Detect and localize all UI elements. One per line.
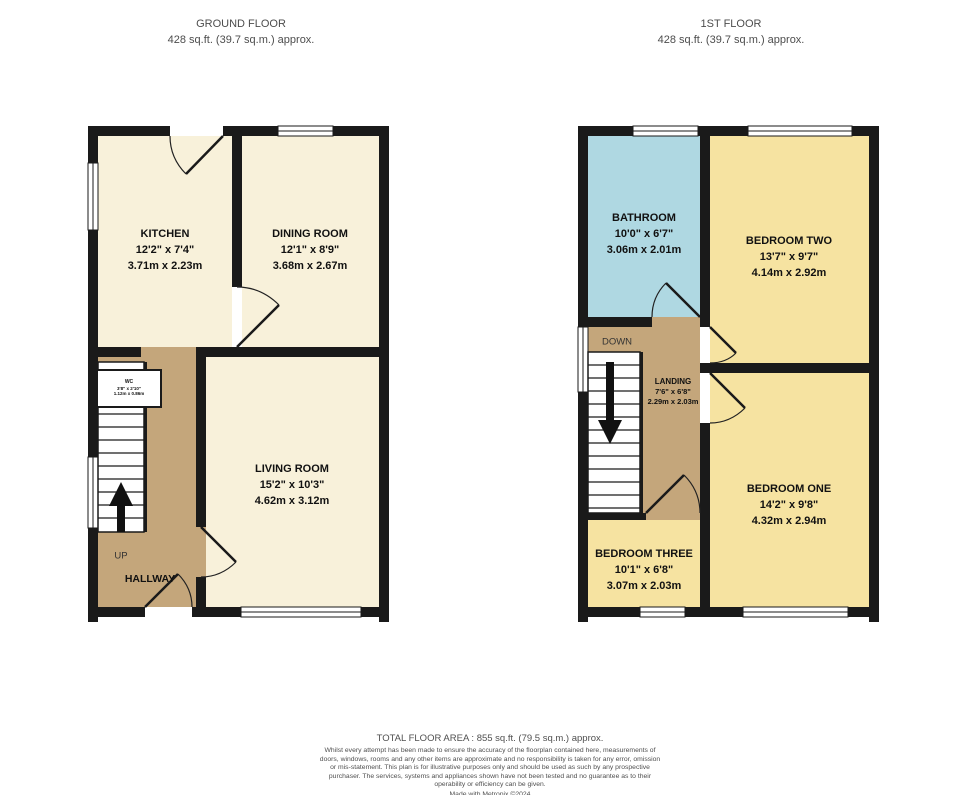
ground-floor-header: GROUND FLOOR 428 sq.ft. (39.7 sq.m.) app…: [86, 16, 396, 48]
kitchen-metric: 3.71m x 2.23m: [128, 258, 203, 274]
landing-metric: 2.29m x 2.03m: [648, 397, 699, 407]
wall: [379, 126, 389, 622]
kitchen-label: KITCHEN 12'2" x 7'4" 3.71m x 2.23m: [128, 226, 203, 274]
floorplan-canvas: GROUND FLOOR 428 sq.ft. (39.7 sq.m.) app…: [0, 0, 980, 795]
bedroom-three-metric: 3.07m x 2.03m: [595, 578, 693, 594]
ground-floor-area: 428 sq.ft. (39.7 sq.m.) approx.: [86, 32, 396, 48]
landing-label: LANDING 7'6" x 6'8" 2.29m x 2.03m: [648, 377, 699, 407]
bedroom-one-label: BEDROOM ONE 14'2" x 9'8" 4.32m x 2.94m: [747, 481, 831, 529]
wall: [361, 607, 389, 617]
down-label: DOWN: [602, 337, 632, 348]
wall: [869, 126, 879, 622]
bedroom-one-name: BEDROOM ONE: [747, 481, 831, 497]
credit-text: Made with Metropix ©2024: [0, 790, 980, 795]
wall: [698, 126, 748, 136]
wall: [88, 347, 141, 357]
wc-label: WC 3'8" x 2'10" 1.12m x 0.86m: [114, 380, 145, 397]
wc-metric: 1.12m x 0.86m: [114, 391, 145, 397]
living-name: LIVING ROOM: [255, 461, 330, 477]
first-floor-title: 1ST FLOOR: [576, 16, 886, 32]
landing-name: LANDING: [648, 377, 699, 387]
living-label: LIVING ROOM 15'2" x 10'3" 4.62m x 3.12m: [255, 461, 330, 509]
living-metric: 4.62m x 3.12m: [255, 493, 330, 509]
first-floor-header: 1ST FLOOR 428 sq.ft. (39.7 sq.m.) approx…: [576, 16, 886, 48]
kitchen-imperial: 12'2" x 7'4": [128, 242, 203, 258]
wall: [578, 126, 588, 327]
wall: [700, 363, 869, 373]
dining-metric: 3.68m x 2.67m: [272, 258, 348, 274]
wall: [640, 352, 643, 513]
dining-imperial: 12'1" x 8'9": [272, 242, 348, 258]
ground-floor-plan: KITCHEN 12'2" x 7'4" 3.71m x 2.23m DININ…: [86, 122, 396, 632]
footer: TOTAL FLOOR AREA : 855 sq.ft. (79.5 sq.m…: [0, 732, 980, 795]
bedroom-three-imperial: 10'1" x 6'8": [595, 562, 693, 578]
bedroom-three-name: BEDROOM THREE: [595, 546, 693, 562]
dining-label: DINING ROOM 12'1" x 8'9" 3.68m x 2.67m: [272, 226, 348, 274]
wall: [88, 230, 98, 457]
ground-floor-title: GROUND FLOOR: [86, 16, 396, 32]
bedroom-three-label: BEDROOM THREE 10'1" x 6'8" 3.07m x 2.03m: [595, 546, 693, 594]
total-floor-area: TOTAL FLOOR AREA : 855 sq.ft. (79.5 sq.m…: [0, 732, 980, 745]
up-label: UP: [114, 551, 127, 562]
wall: [578, 392, 588, 622]
bedroom-two-label: BEDROOM TWO 13'7" x 9'7" 4.14m x 2.92m: [746, 233, 832, 281]
up-arrow-shaft: [117, 506, 125, 532]
wall: [88, 126, 170, 136]
disclaimer-text: Whilst every attempt has been made to en…: [316, 747, 664, 790]
bedroom-two-imperial: 13'7" x 9'7": [746, 249, 832, 265]
bedroom-one-imperial: 14'2" x 9'8": [747, 497, 831, 513]
wall: [700, 136, 710, 327]
first-floor-plan: BATHROOM 10'0" x 6'7" 3.06m x 2.01m BEDR…: [576, 122, 886, 632]
wall: [578, 317, 652, 327]
wall: [223, 126, 278, 136]
bathroom-name: BATHROOM: [607, 210, 682, 226]
kitchen-name: KITCHEN: [128, 226, 203, 242]
wall: [685, 607, 743, 617]
bedroom-two-metric: 4.14m x 2.92m: [746, 265, 832, 281]
down-arrow-shaft: [606, 362, 614, 420]
hallway-label: HALLWAY: [125, 573, 175, 585]
wall: [196, 357, 206, 527]
wall: [700, 423, 710, 607]
landing-imperial: 7'6" x 6'8": [648, 387, 699, 397]
wall: [196, 347, 379, 357]
bathroom-metric: 3.06m x 2.01m: [607, 242, 682, 258]
wall: [192, 607, 241, 617]
wall: [848, 607, 879, 617]
dining-name: DINING ROOM: [272, 226, 348, 242]
living-imperial: 15'2" x 10'3": [255, 477, 330, 493]
bathroom-label: BATHROOM 10'0" x 6'7" 3.06m x 2.01m: [607, 210, 682, 258]
bedroom-one-metric: 4.32m x 2.94m: [747, 513, 831, 529]
wall: [578, 607, 640, 617]
first-floor-area: 428 sq.ft. (39.7 sq.m.) approx.: [576, 32, 886, 48]
wall: [232, 136, 242, 287]
bathroom-imperial: 10'0" x 6'7": [607, 226, 682, 242]
wall: [88, 607, 145, 617]
wall: [88, 126, 98, 163]
bedroom-two-name: BEDROOM TWO: [746, 233, 832, 249]
wall: [578, 513, 646, 520]
ground-floor-plan-svg: [86, 122, 396, 632]
wall: [196, 577, 206, 607]
